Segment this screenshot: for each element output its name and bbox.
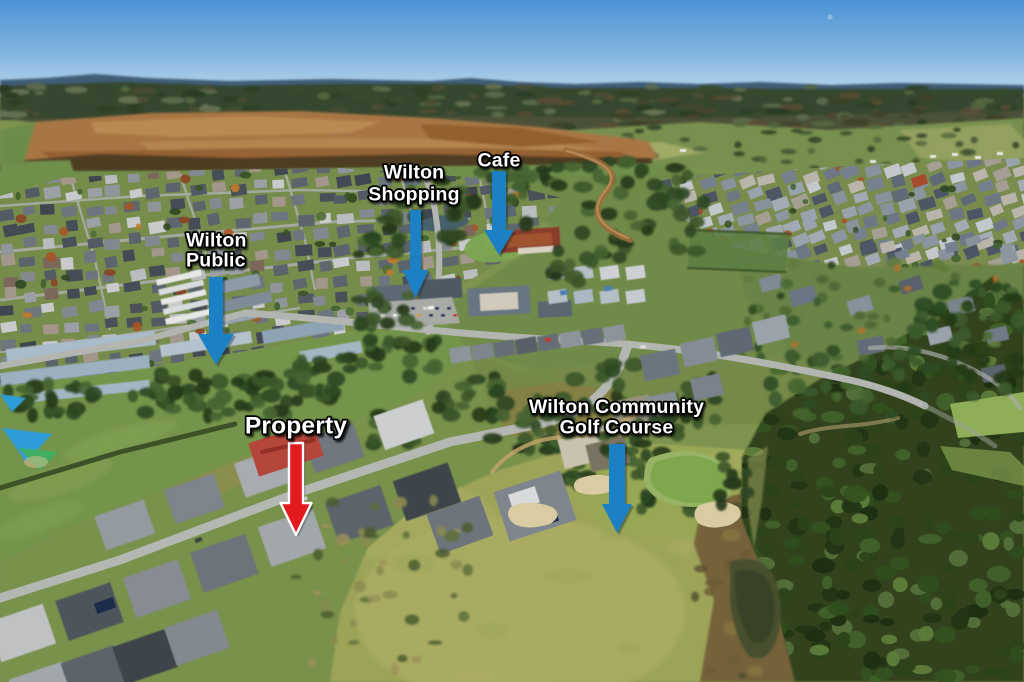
svg-text:Property: Property bbox=[245, 413, 348, 440]
svg-text:Wilton Community: Wilton Community bbox=[529, 396, 704, 418]
svg-text:Golf Course: Golf Course bbox=[560, 416, 674, 438]
svg-text:Wilton: Wilton bbox=[186, 230, 247, 252]
svg-text:Shopping: Shopping bbox=[368, 184, 460, 206]
svg-text:Cafe: Cafe bbox=[477, 150, 520, 172]
svg-text:Wilton: Wilton bbox=[384, 161, 445, 183]
svg-text:Public: Public bbox=[186, 250, 246, 272]
